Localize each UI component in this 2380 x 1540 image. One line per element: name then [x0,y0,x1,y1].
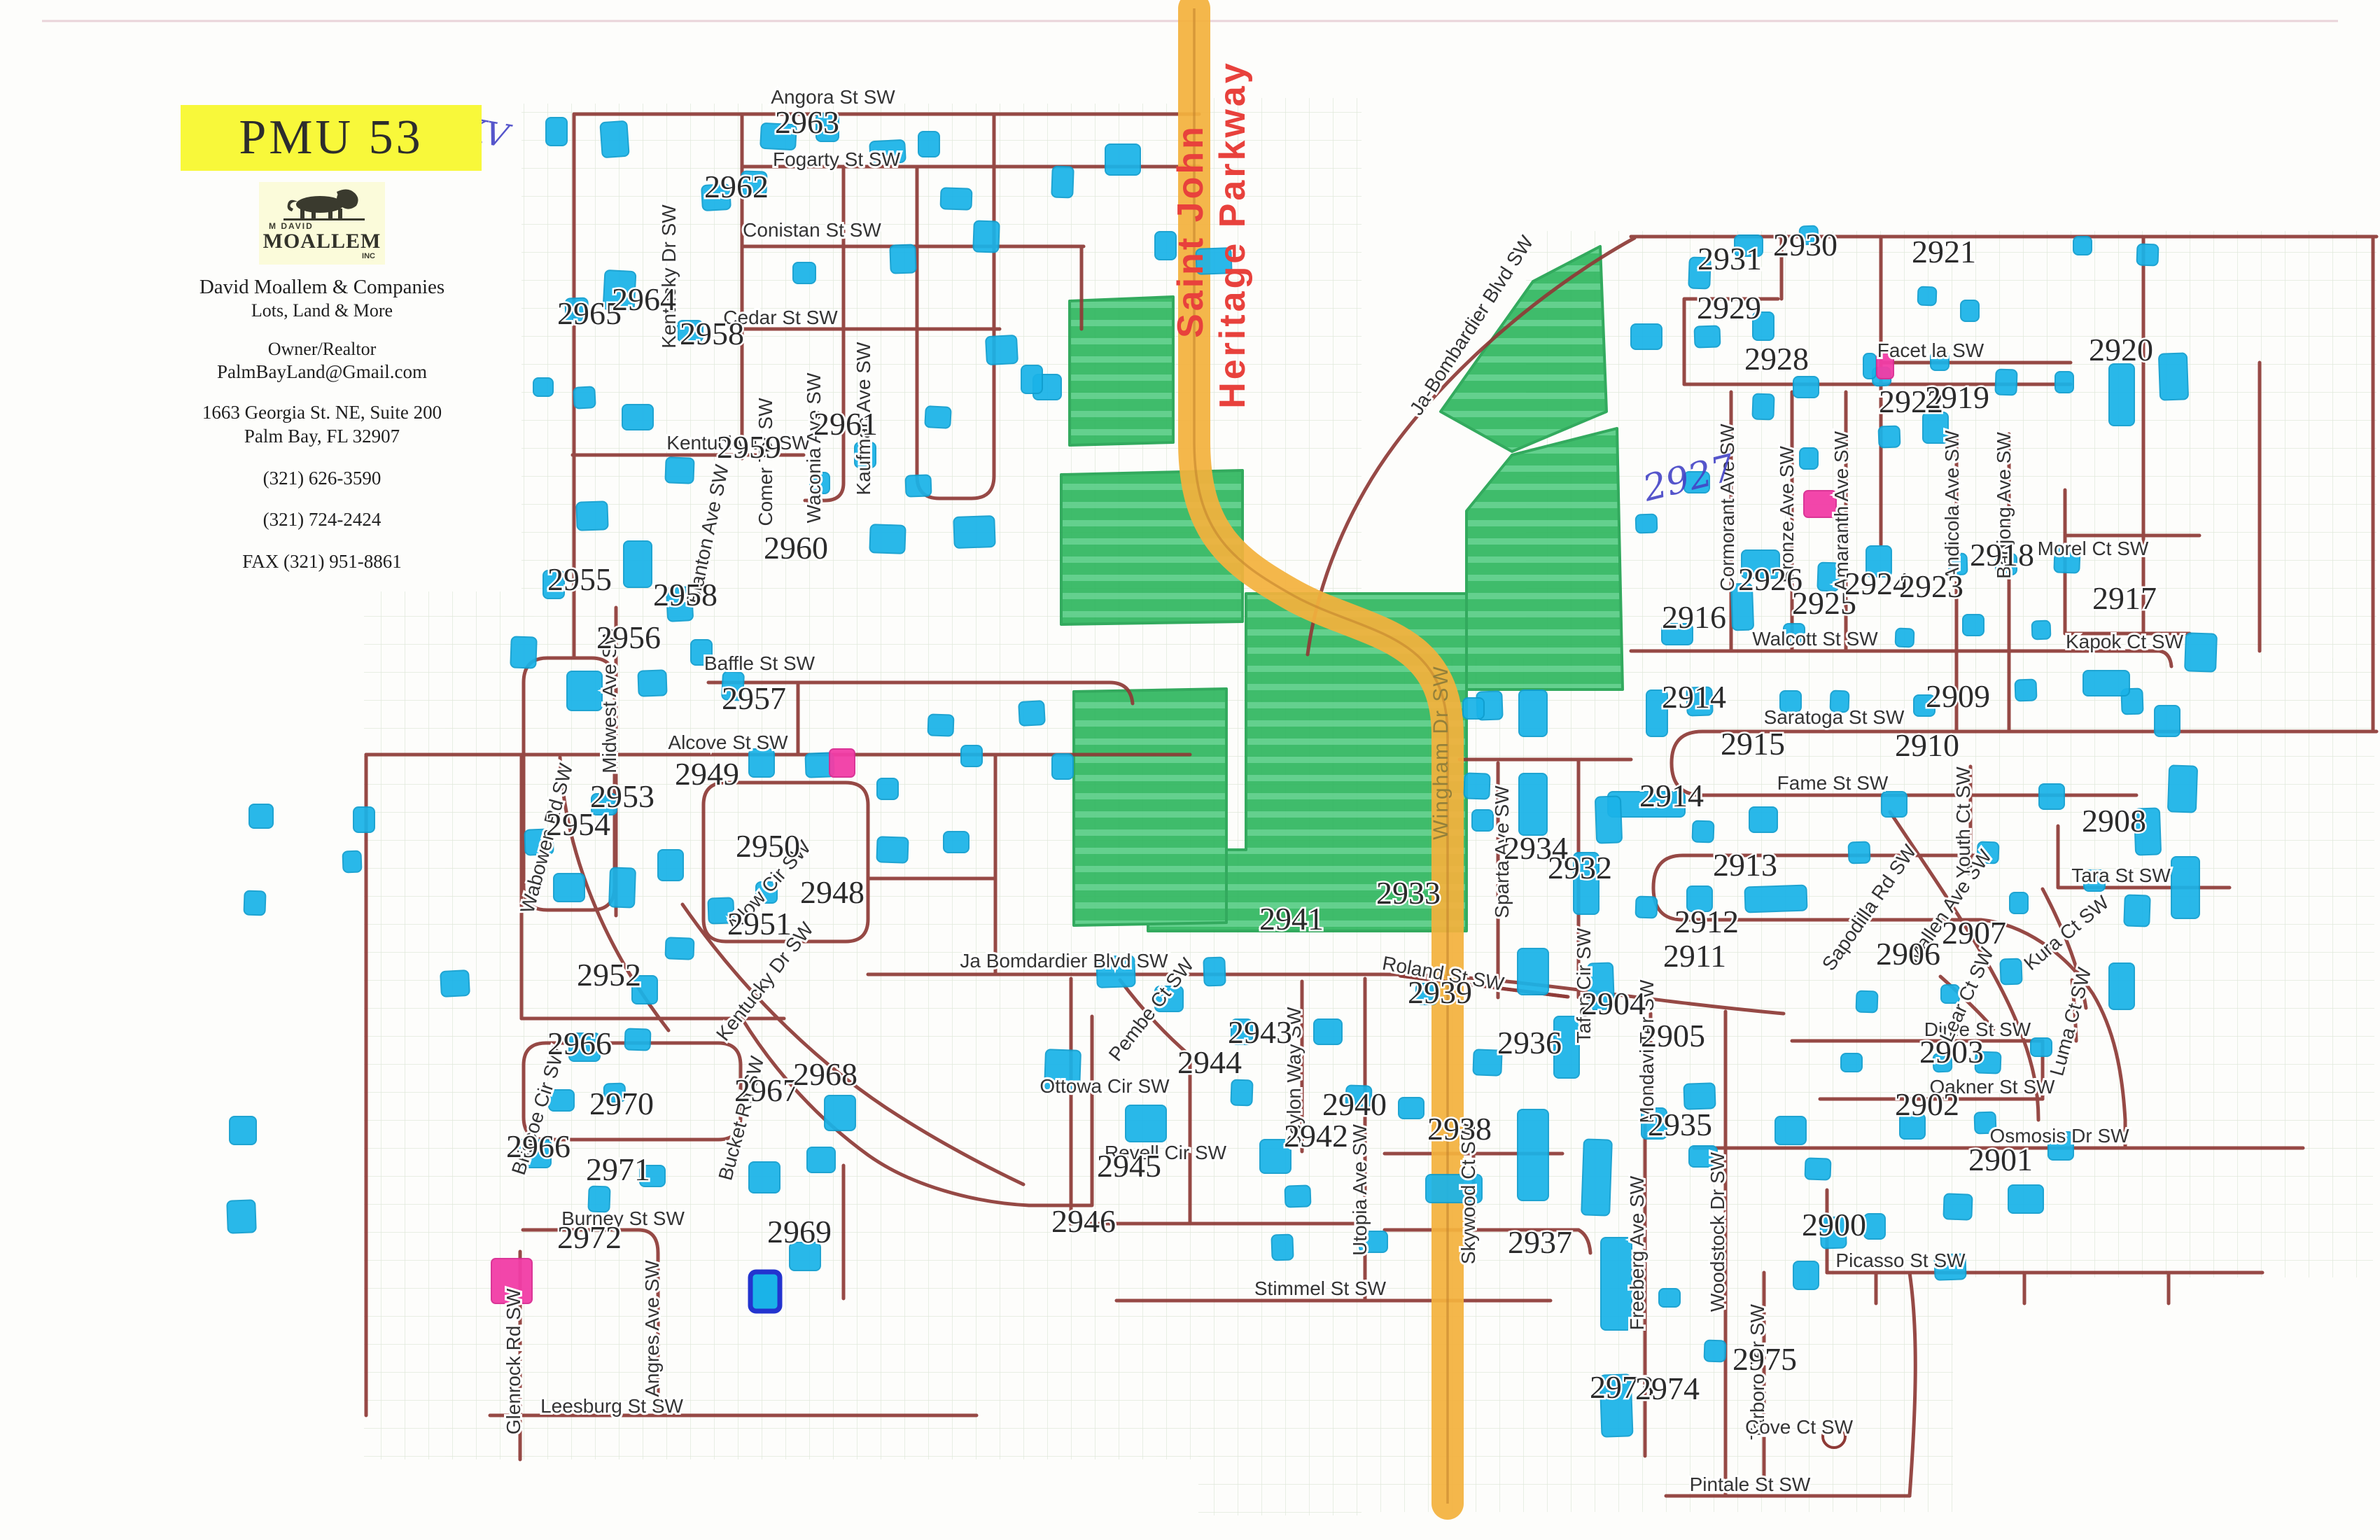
logo-inc-text: INC [362,252,375,260]
highlighted-lot [1051,166,1074,197]
owner-role: Owner/Realtor [126,338,518,361]
highlighted-lot [825,1095,855,1130]
highlighted-lot [905,475,931,496]
highlighted-lot [353,807,374,832]
parkway-name-line2: Heritage Parkway [1212,60,1253,409]
address-line1: 1663 Georgia St. NE, Suite 200 [126,401,518,425]
street-label: Freeberg Ave SW [1626,1175,1648,1330]
highlighted-lot [665,937,694,959]
section-number: 2974 [1635,1371,1700,1406]
section-number: 2913 [1713,847,1777,883]
street-label: Ottowa Cir SW [1039,1075,1170,1097]
moallem-logo: M DAVID MOALLEM INC [259,182,385,265]
highlighted-lot [793,262,815,283]
section-number: 2915 [1721,726,1785,762]
section-number: 2959 [717,429,781,465]
highlighted-lot [2159,353,2188,400]
section-number: 2906 [1876,936,1940,972]
section-number: 2964 [612,281,676,317]
section-number: 2958 [680,316,744,351]
street-label: Pintale St SW [1690,1473,1811,1495]
highlighted-lot [1882,792,1907,817]
highlighted-lot [807,1147,835,1172]
highlighted-lot [658,850,683,881]
street-label: Stimmel St SW [1254,1277,1387,1299]
parkway-name-line1: Saint John [1170,124,1211,338]
street-label: Leesburg St SW [540,1395,683,1417]
highlighted-lot [925,406,951,428]
highlighted-lot [1918,287,1937,306]
section-number: 2907 [1942,915,2006,951]
highlighted-lot [2000,958,2022,984]
highlighted-lot [2124,895,2150,926]
street-label: Saratoga St SW [1764,706,1905,728]
street-label: Conistan St SW [743,219,881,241]
street-label: Waconia Ave SW [803,372,825,523]
highlighted-lot [1896,629,1914,647]
section-number: 2972 [557,1219,622,1255]
section-number: 2951 [727,906,792,941]
section-number: 2937 [1508,1224,1572,1260]
highlighted-lot [944,832,969,853]
wingham-road-label: Wingham Dr SW [1429,665,1452,839]
street-label: Alcove St SW [668,731,788,753]
street-label: Picasso St SW [1835,1249,1966,1271]
section-number: 2938 [1427,1111,1492,1147]
street-label: Baffle St SW [704,652,815,674]
section-number: 2956 [596,619,661,655]
green-parcel [1466,428,1623,689]
highlighted-lot [749,1162,780,1193]
section-number: 2928 [1744,341,1809,377]
section-number: 2923 [1899,568,1963,604]
green-parcel [1074,689,1226,925]
highlighted-lot [2185,633,2217,672]
highlighted-lot [2055,372,2073,393]
phone-2: (321) 724-2424 [126,508,518,532]
highlighted-lot [1800,448,1818,469]
section-number: 2917 [2092,580,2157,616]
section-number: 2918 [1970,537,2034,573]
highlighted-lot [953,516,995,548]
highlighted-lot [2031,1038,2052,1056]
street-label: Walcott St SW [1752,628,1878,650]
street-label: Kapok Ct SW [2066,631,2184,652]
green-parcel [1070,297,1173,445]
highlighted-lot [1864,1214,1885,1239]
highlighted-lot [244,890,265,915]
highlighted-lot [1105,144,1140,175]
fax-number: FAX (321) 951-8861 [126,550,518,574]
section-number: 2903 [1919,1034,1984,1070]
street-label: Woodstock Dr SW [1707,1151,1728,1312]
highlighted-lot [624,541,652,587]
highlighted-lot [546,118,567,146]
section-number: 2955 [547,561,612,597]
realtor-info-panel: PMU 53 M DAVID MOALLEM INC David Moallem… [126,105,518,592]
highlighted-lot [961,745,982,766]
highlighted-lot [2171,857,2199,918]
highlighted-lot [1995,369,2017,395]
street-label: Glenrock Rd SW [503,1288,524,1434]
highlighted-lot [1841,1053,1862,1072]
highlighted-lot [918,132,939,157]
highlighted-lot [1595,796,1622,843]
highlighted-lot [1472,810,1493,831]
highlighted-lot [927,714,953,736]
highlighted-lot [890,244,916,273]
highlighted-lot [986,335,1018,365]
company-tagline: Lots, Land & More [126,300,518,323]
highlighted-lot [877,778,898,799]
street-label: Fogarty St SW [773,148,901,170]
section-number: 2952 [577,957,641,993]
highlighted-lot [567,671,602,710]
section-number: 2946 [1051,1203,1116,1239]
street-label: Utopia Ave SW [1349,1124,1371,1256]
highlighted-lot [1203,957,1225,986]
section-number: 2966 [547,1025,612,1061]
highlighted-lot [440,970,470,997]
section-number: 2950 [736,828,800,864]
section-number: 2961 [813,406,878,442]
highlighted-lot [1704,1340,1725,1361]
highlighted-lot [1805,1158,1830,1179]
section-number: 2944 [1177,1044,1242,1080]
street-label: Morel Ct SW [2038,538,2149,559]
section-number: 2914 [1639,778,1704,813]
highlighted-lot [2073,237,2092,255]
section-number: 2935 [1648,1107,1712,1142]
highlighted-lot [1636,514,1658,533]
section-number: 2966 [506,1128,570,1164]
section-number: 2960 [764,530,828,566]
street-label: Fame St SW [1777,772,1889,794]
section-number: 2901 [1968,1142,2033,1177]
pmu-title-text: PMU 53 [239,110,423,166]
section-number: 2968 [793,1056,857,1092]
street-label: Tara St SW [2071,864,2171,886]
highlighted-lot [2010,892,2028,913]
highlighted-lot [869,524,905,554]
section-number: 2909 [1926,678,1990,714]
highlighted-lot [227,1200,256,1233]
highlighted-lot [1775,1116,1806,1144]
highlighted-lot [230,1116,256,1144]
section-number: 2914 [1662,679,1726,715]
address-line2: Palm Bay, FL 32907 [126,425,518,449]
highlighted-lot [1848,841,1870,863]
highlighted-lot [1744,885,1807,912]
section-number: 2963 [775,104,839,140]
highlighted-lot [876,836,908,863]
highlighted-lot [533,378,553,396]
section-number: 2945 [1097,1148,1161,1184]
highlighted-lot [510,636,537,668]
highlighted-lot [2015,679,2036,701]
section-number: 2967 [734,1072,799,1108]
highlighted-lot [1752,393,1774,419]
highlighted-lot [1518,1109,1548,1200]
section-number: 2911 [1663,938,1726,974]
section-number: 2930 [1773,227,1837,262]
highlighted-lot [1878,426,1900,447]
highlighted-lot [2136,244,2158,265]
highlighted-lot [1692,820,1714,842]
highlighted-lot [1581,1139,1612,1215]
highlighted-lot [749,749,774,777]
highlighted-lot [624,1028,650,1050]
highlighted-lot [2109,963,2134,1009]
company-name: David Moallem & Companies [126,274,518,300]
highlighted-lot [940,188,972,210]
section-number: 2916 [1662,599,1726,635]
section-number: 2940 [1322,1086,1387,1122]
highlighted-lot [1863,353,1876,379]
section-number: 2931 [1697,241,1762,276]
highlighted-lot [1519,773,1547,835]
lion-icon [269,185,374,221]
section-number: 2904 [1581,986,1646,1021]
highlighted-lot [1284,1185,1310,1207]
highlighted-lot [1694,325,1720,347]
highlighted-lot [249,804,273,828]
street-label: Kentucky Dr SW [658,204,680,349]
section-number: 2958 [653,577,717,612]
section-number: 2936 [1497,1025,1562,1060]
highlighted-lot [1856,990,1877,1012]
highlighted-lot [665,457,694,483]
street-label: Angres Ave SW [641,1260,663,1397]
contact-email[interactable]: PalmBayLand@Gmail.com [126,360,518,384]
section-number: 2920 [2089,332,2153,367]
street-label: Youth Ct SW [1952,766,1974,878]
section-number: 2910 [1895,727,1959,763]
highlighted-lot [1793,1261,1819,1289]
section-number: 2970 [589,1086,654,1121]
section-number: 2949 [675,756,739,792]
highlighted-lot [1126,1105,1166,1142]
section-number: 2971 [586,1151,650,1187]
highlighted-lot [1052,754,1073,779]
highlighted-lot [1021,365,1042,393]
pmu-title: PMU 53 [181,105,482,171]
section-number: 2957 [722,680,786,716]
section-number: 2929 [1697,290,1761,325]
highlighted-lot [2168,765,2197,812]
phone-1: (321) 626-3590 [126,467,518,491]
section-number: 2954 [546,806,610,842]
section-number: 2933 [1376,875,1441,911]
highlighted-lot [622,405,653,430]
street-label: Ja Bomdardier Blvd SW [960,950,1168,972]
section-number: 2942 [1284,1118,1348,1154]
section-number: 2941 [1259,901,1324,937]
highlighted-lot [554,874,584,902]
highlighted-lot [1018,701,1045,726]
plat-map-page: { "panel": { "pmu": "PMU 53", "logo": { … [0,0,2380,1540]
highlighted-lot [1963,615,1984,636]
logo-name-text: MOALLEM [263,231,381,252]
highlighted-lot [2155,706,2180,736]
highlighted-lot [342,851,361,873]
highlighted-lot [2032,621,2051,640]
highlighted-lot [638,670,666,696]
section-number: 2962 [704,169,769,204]
highlighted-lot [2083,671,2129,696]
highlighted-lot [2039,784,2064,809]
highlighted-lot [1464,773,1490,799]
section-number: 2902 [1895,1086,1959,1122]
highlighted-lot [576,501,608,531]
section-number: 2948 [800,874,864,910]
highlighted-lot [1463,698,1484,719]
highlighted-lot [2008,1185,2043,1213]
highlighted-lot [1271,1234,1293,1260]
highlighted-lot [1961,300,1979,321]
highlighted-lot [1635,896,1657,918]
highlighted-lot [1399,1098,1424,1119]
street-label: Cove Ct SW [1745,1416,1854,1438]
highlighted-lot [1659,1289,1680,1307]
street-label: Andicola Ave SW [1941,430,1963,580]
highlighted-lot [1231,1079,1252,1105]
highlighted-lot [1683,1083,1715,1109]
section-number: 2921 [1912,234,1976,269]
highlighted-lot [1749,807,1777,832]
highlighted-lot [1793,377,1819,398]
outlined-lot [750,1272,780,1311]
highlighted-lot [973,220,1000,252]
section-number: 2975 [1732,1341,1797,1377]
section-number: 2919 [1925,379,1989,415]
section-number: 2905 [1641,1018,1705,1053]
highlighted-lot [1519,690,1547,736]
highlighted-lot [573,386,596,409]
highlighted-lot [600,121,629,158]
section-number: 2969 [767,1214,832,1249]
highlighted-lot [1631,324,1662,349]
street-label: Facet la SW [1877,339,1984,361]
section-number: 2908 [2082,803,2146,839]
highlighted-lot [2109,364,2134,426]
section-number: 2939 [1408,974,1472,1010]
highlighted-lot [609,867,636,907]
pink-lot [829,749,855,777]
section-number: 2912 [1674,904,1739,939]
highlighted-lot [1518,948,1548,995]
highlighted-lot [1314,1019,1342,1044]
highlighted-lot [1943,1193,1972,1219]
section-number: 2900 [1802,1207,1866,1242]
section-number: 2934 [1504,830,1568,866]
